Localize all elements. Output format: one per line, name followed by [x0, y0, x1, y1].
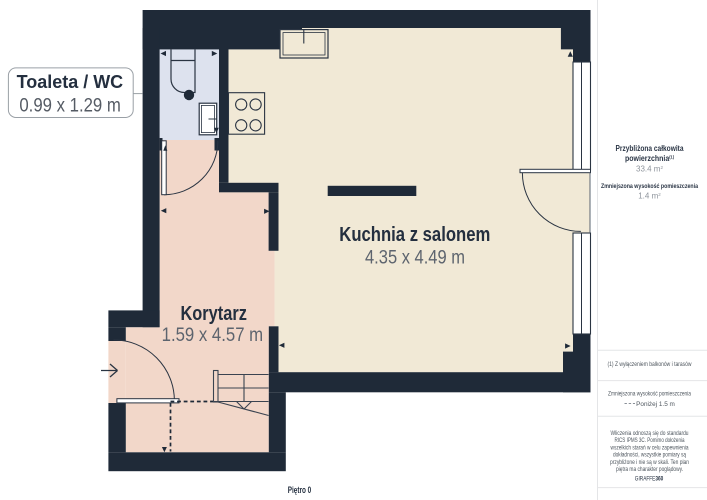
svg-text:dokładności, wszystkie pomiary: dokładności, wszystkie pomiary są	[613, 452, 686, 459]
svg-text:piętra ma charakter poglądowy.: piętra ma charakter poglądowy.	[616, 466, 683, 473]
svg-text:wszelkich starań w celu zapewn: wszelkich starań w celu zapewnienia	[610, 444, 689, 451]
svg-text:Zmniejszona wysokość pomieszcz: Zmniejszona wysokość pomieszczenia	[601, 183, 698, 190]
svg-text:(1) Z wyłączeniem balkonów i t: (1) Z wyłączeniem balkonów i tarasów	[608, 361, 692, 368]
svg-text:Korytarz: Korytarz	[180, 303, 247, 325]
svg-text:Kuchnia z salonem: Kuchnia z salonem	[339, 224, 490, 246]
svg-text:4.35 x 4.49 m: 4.35 x 4.49 m	[365, 247, 465, 269]
svg-text:1.59 x 4.57 m: 1.59 x 4.57 m	[162, 325, 264, 346]
svg-text:Poniżej 1.5 m: Poniżej 1.5 m	[636, 401, 675, 408]
svg-text:1.4 m2: 1.4 m2	[638, 192, 661, 201]
svg-text:powierzchnia(1): powierzchnia(1)	[625, 154, 674, 163]
svg-text:Piętro 0: Piętro 0	[288, 485, 312, 496]
svg-text:Zmniejszona wysokość pomieszcz: Zmniejszona wysokość pomieszczenia	[608, 391, 691, 398]
svg-text:Toaleta / WC: Toaleta / WC	[17, 72, 124, 92]
svg-text:przybliżone i nie są w skali.: przybliżone i nie są w skali. Ten plan	[610, 459, 689, 466]
svg-text:Wliczenia odnoszą się do stand: Wliczenia odnoszą się do standardu	[611, 430, 689, 437]
svg-text:GIRAFFE360: GIRAFFE360	[635, 476, 664, 483]
svg-text:Przybliżona całkowita: Przybliżona całkowita	[616, 144, 684, 153]
svg-text:33.4 m2: 33.4 m2	[636, 165, 663, 174]
svg-text:RICS IPMS 3C. Pomimo dołożenia: RICS IPMS 3C. Pomimo dołożenia	[615, 437, 685, 444]
svg-text:0.99 x 1.29 m: 0.99 x 1.29 m	[19, 96, 121, 117]
